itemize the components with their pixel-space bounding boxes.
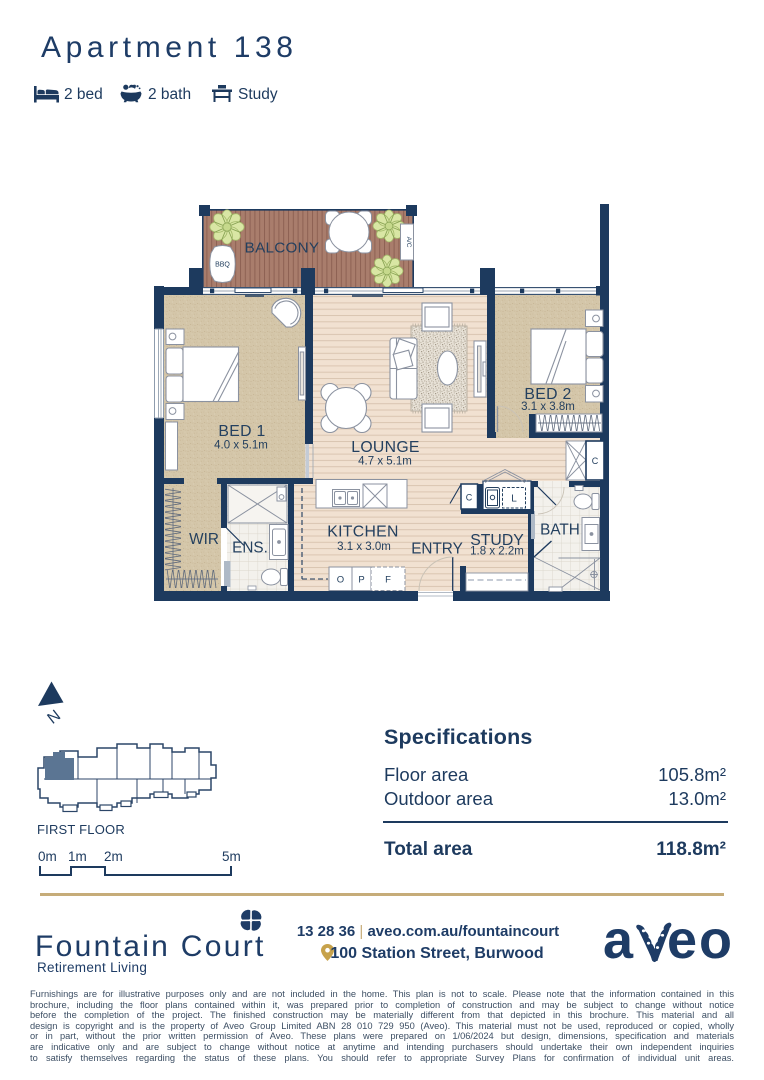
svg-text:4.7 x 5.1m: 4.7 x 5.1m — [358, 456, 412, 468]
svg-text:BATH: BATH — [540, 522, 580, 539]
svg-text:5m: 5m — [222, 849, 241, 864]
svg-text:4.0 x 5.1m: 4.0 x 5.1m — [214, 440, 268, 452]
svg-text:ENTRY: ENTRY — [411, 541, 463, 558]
svg-text:3.1 x 3.0m: 3.1 x 3.0m — [337, 541, 391, 553]
svg-text:e: e — [667, 910, 697, 966]
svg-text:C: C — [466, 493, 473, 503]
svg-text:BBQ: BBQ — [215, 262, 230, 269]
svg-text:L: L — [511, 494, 517, 505]
svg-text:N: N — [45, 707, 65, 728]
svg-text:1m: 1m — [68, 849, 87, 864]
svg-text:3.1 x 3.8m: 3.1 x 3.8m — [521, 401, 575, 413]
svg-text:o: o — [699, 910, 732, 966]
svg-text:F: F — [385, 575, 391, 586]
svg-text:2m: 2m — [104, 849, 123, 864]
svg-text:ENS.: ENS. — [232, 540, 268, 557]
svg-text:O: O — [337, 575, 344, 586]
svg-text:LOUNGE: LOUNGE — [351, 439, 420, 456]
svg-text:P: P — [358, 575, 364, 586]
svg-text:BED 1: BED 1 — [218, 423, 265, 440]
svg-text:C: C — [592, 456, 599, 466]
svg-text:WIR: WIR — [189, 531, 219, 548]
svg-text:FIRST FLOOR: FIRST FLOOR — [37, 822, 125, 837]
svg-text:0m: 0m — [38, 849, 57, 864]
svg-text:A/C: A/C — [405, 237, 412, 248]
svg-text:a: a — [603, 910, 634, 966]
svg-text:BALCONY: BALCONY — [245, 240, 320, 257]
svg-text:1.8 x 2.2m: 1.8 x 2.2m — [470, 546, 524, 558]
svg-text:KITCHEN: KITCHEN — [327, 524, 398, 541]
